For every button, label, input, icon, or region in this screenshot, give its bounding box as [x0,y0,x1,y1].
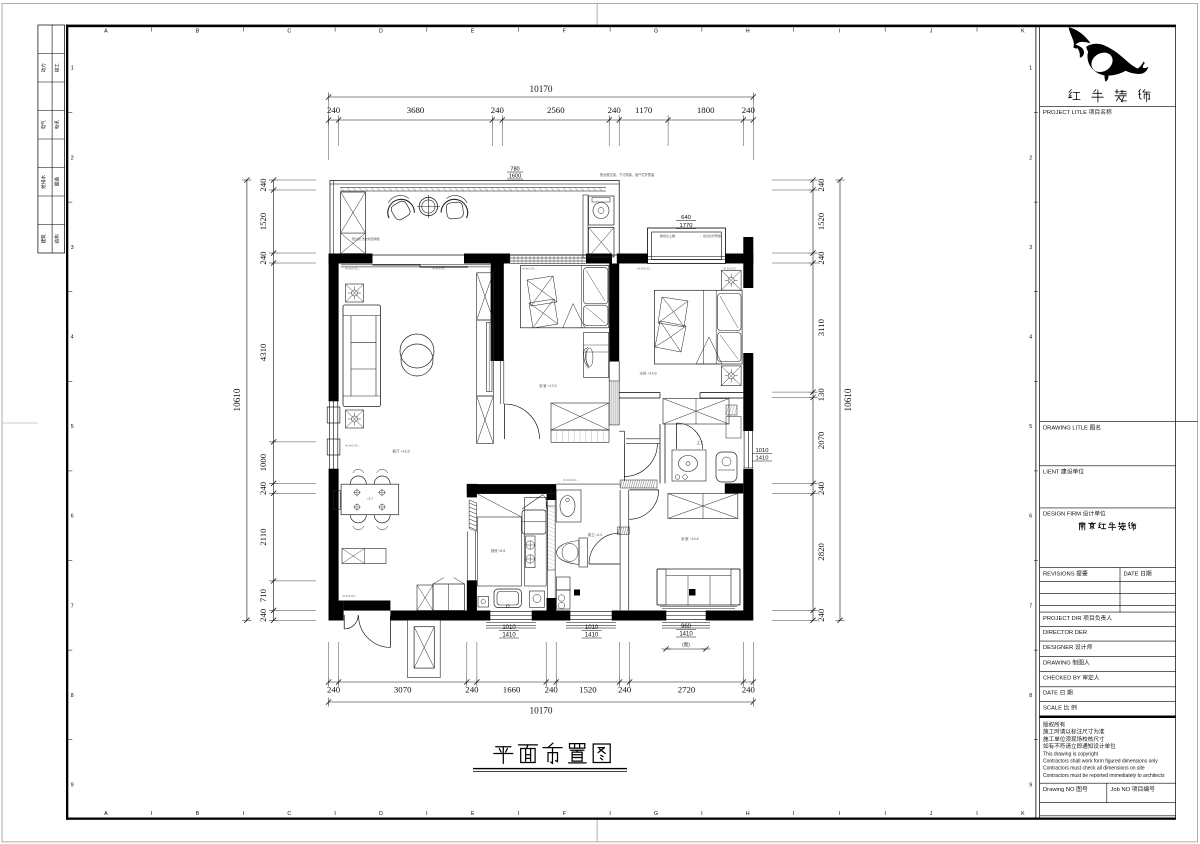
svg-text:J: J [930,811,933,817]
svg-text:H: H [746,811,750,817]
svg-text:5: 5 [71,424,74,430]
svg-text:710: 710 [258,588,268,602]
svg-text:240: 240 [608,105,622,115]
svg-text:8: 8 [1029,693,1032,699]
svg-text:飘窗台上翻: 飘窗台上翻 [660,233,675,238]
svg-text:10170: 10170 [530,84,553,94]
svg-text:卧室 ≈10.6: 卧室 ≈10.6 [681,536,698,541]
svg-text:240: 240 [258,608,268,622]
svg-text:≈2.7: ≈2.7 [367,497,373,501]
svg-text:电讯: 电讯 [53,120,60,130]
svg-text:G: G [654,29,658,35]
svg-text:2: 2 [71,155,74,161]
svg-text:DIRECTOR DER: DIRECTOR DER [1043,630,1087,636]
svg-text:4: 4 [71,335,74,341]
svg-text:A: A [104,811,108,817]
svg-text:REVISIONS 提要: REVISIONS 提要 [1043,569,1088,577]
svg-text:240: 240 [545,685,559,695]
svg-text:1000: 1000 [258,453,268,471]
svg-text:1770: 1770 [680,223,693,229]
svg-text:H: H [746,29,750,35]
svg-text:1660: 1660 [503,685,521,695]
svg-text:3: 3 [71,245,74,251]
svg-text:1: 1 [71,66,74,72]
svg-text:厨房 ≈5.8: 厨房 ≈5.8 [491,548,505,553]
svg-text:主卧 ≈14.6: 主卧 ≈14.6 [639,371,656,376]
svg-text:SCALE 比 例: SCALE 比 例 [1043,703,1077,711]
svg-text:LIENT 建设单位: LIENT 建设单位 [1043,467,1084,475]
svg-text:2: 2 [1029,155,1032,161]
svg-text:2110: 2110 [258,528,268,546]
svg-text:4310: 4310 [258,343,268,361]
svg-text:1410: 1410 [585,633,599,639]
svg-text:240: 240 [816,481,826,495]
svg-text:240: 240 [816,178,826,192]
svg-text:≈0.9×2.0C→: ≈0.9×2.0C→ [345,444,361,448]
svg-text:G: G [654,811,658,817]
svg-text:版权所有: 版权所有 [1043,721,1066,729]
svg-text:≈0.9×2.0C→: ≈0.9×2.0C→ [637,267,653,271]
svg-text:9: 9 [71,783,74,789]
svg-text:(窗): (窗) [682,641,690,648]
svg-text:F: F [563,29,566,35]
svg-text:竣工: 竣工 [53,63,60,73]
svg-text:Contractors shall work form fi: Contractors shall work form figured dime… [1043,759,1158,765]
svg-text:240: 240 [258,178,268,192]
svg-text:如有不符请立即通知设计单位: 如有不符请立即通知设计单位 [1043,742,1116,750]
svg-text:10610: 10610 [232,388,242,411]
svg-text:5: 5 [1029,424,1032,430]
svg-text:2820: 2820 [816,543,826,561]
svg-text:C: C [287,811,291,817]
svg-text:240: 240 [258,251,268,265]
svg-text:1410: 1410 [756,456,769,462]
svg-text:780: 780 [510,167,519,173]
svg-text:阳台柜 洗衣机置物柜: 阳台柜 洗衣机置物柜 [352,236,380,241]
svg-text:客卫 ≈4.0: 客卫 ≈4.0 [588,532,602,537]
svg-text:1170: 1170 [635,105,653,115]
svg-text:客厅 ≈16.5: 客厅 ≈16.5 [392,449,409,454]
svg-text:130: 130 [816,388,826,402]
svg-text:1800: 1800 [697,105,715,115]
svg-text:This drawing is copyright: This drawing is copyright [1043,751,1099,757]
svg-text:D: D [379,811,383,817]
svg-text:1: 1 [1029,66,1032,72]
svg-text:Contractors must be reported i: Contractors must be reported immediately… [1043,773,1165,779]
svg-text:2070: 2070 [816,431,826,449]
svg-text:≈0.9×2.0C→: ≈0.9×2.0C→ [563,478,579,482]
svg-text:240: 240 [618,685,632,695]
svg-text:CHECKED BY 审定人: CHECKED BY 审定人 [1043,673,1100,681]
svg-text:DRAWING 制图人: DRAWING 制图人 [1043,658,1090,666]
svg-text:640: 640 [681,215,691,221]
svg-text:暖通: 暖通 [53,177,60,187]
svg-text:E: E [471,29,475,35]
svg-text:240: 240 [816,608,826,622]
svg-text:DATE 日期: DATE 日期 [1124,570,1152,577]
svg-text:240: 240 [742,685,756,695]
svg-text:动力: 动力 [40,63,47,73]
svg-text:DESIGN FIRM 设计单位: DESIGN FIRM 设计单位 [1043,509,1106,517]
svg-text:建筑: 建筑 [40,234,47,244]
svg-text:I: I [839,29,840,35]
svg-text:9: 9 [1029,783,1032,789]
svg-text:DRAWING LITLE 图名: DRAWING LITLE 图名 [1043,423,1101,431]
svg-text:3: 3 [1029,245,1032,251]
svg-text:主卫: 主卫 [697,440,704,445]
svg-text:240: 240 [816,251,826,265]
svg-text:1410: 1410 [502,633,516,639]
svg-text:7: 7 [71,603,74,609]
svg-text:施工时请以标注尺寸为准: 施工时请以标注尺寸为准 [1043,728,1105,736]
svg-text:240: 240 [327,105,341,115]
svg-text:≈0.9×2.0C→: ≈0.9×2.0C→ [345,267,361,271]
svg-text:10170: 10170 [530,706,553,716]
svg-text:B: B [196,29,200,35]
svg-text:1600: 1600 [509,174,521,180]
svg-text:DESIGNER 设计师: DESIGNER 设计师 [1043,643,1092,651]
svg-text:10610: 10610 [843,388,853,411]
svg-text:I: I [839,811,840,817]
svg-text:240: 240 [327,685,341,695]
svg-text:2720: 2720 [678,685,696,695]
svg-text:240: 240 [258,481,268,495]
svg-text:≈0.9×2.0C→: ≈0.9×2.0C→ [723,267,739,271]
svg-text:J: J [930,29,933,35]
svg-text:3680: 3680 [407,105,425,115]
svg-text:960: 960 [681,624,692,630]
svg-text:1010: 1010 [585,625,599,631]
svg-text:Contractors must check all dim: Contractors must check all dimensions on… [1043,766,1145,772]
svg-text:1010: 1010 [502,625,516,631]
svg-text:E: E [471,811,475,817]
svg-text:1410: 1410 [679,632,693,638]
svg-text:B: B [196,811,200,817]
svg-text:240: 240 [491,105,505,115]
svg-text:施工单位须现场校核尺寸: 施工单位须现场校核尺寸 [1043,735,1105,743]
svg-text:PROJECT DIR 项目负责人: PROJECT DIR 项目负责人 [1043,614,1112,622]
svg-text:1520: 1520 [816,212,826,230]
svg-text:C: C [287,29,291,35]
svg-text:D: D [379,29,383,35]
svg-text:1520: 1520 [258,212,268,230]
svg-text:K: K [1021,29,1025,35]
svg-text:电气: 电气 [40,120,46,130]
svg-text:阳台推拉窗，下订购窗，窗户栏杆预留: 阳台推拉窗，下订购窗，窗户栏杆预留 [600,172,654,177]
svg-text:240: 240 [465,685,479,695]
svg-text:3070: 3070 [394,685,412,695]
svg-text:7: 7 [1029,603,1032,609]
svg-text:PROJECT LITLE 项目名称: PROJECT LITLE 项目名称 [1043,108,1112,116]
svg-text:6: 6 [71,514,74,520]
svg-text:卧室 ≈13.5: 卧室 ≈13.5 [539,383,556,388]
svg-text:给排水: 给排水 [40,175,47,189]
svg-text:≈0.9×2.0C→: ≈0.9×2.0C→ [522,267,538,271]
svg-text:1520: 1520 [579,685,597,695]
svg-text:4: 4 [1029,335,1032,341]
svg-text:3110: 3110 [816,318,826,336]
svg-text:A: A [104,29,108,35]
svg-text:K: K [1021,811,1025,817]
svg-text:6: 6 [1029,514,1032,520]
svg-text:F: F [563,811,566,817]
svg-text:Job NO 项目编号: Job NO 项目编号 [1111,785,1156,793]
svg-text:结构: 结构 [53,234,60,244]
svg-text:≈0.9×2.0C→: ≈0.9×2.0C→ [342,594,358,598]
svg-text:2560: 2560 [547,105,565,115]
svg-text:DATE 日 期: DATE 日 期 [1043,690,1073,697]
svg-text:1010: 1010 [756,448,769,454]
svg-text:←窗台栏杆预留: ←窗台栏杆预留 [700,233,721,238]
svg-text:Drawing NO 图号: Drawing NO 图号 [1043,785,1088,793]
svg-text:≈0.9×2.0C→: ≈0.9×2.0C→ [432,267,448,271]
svg-text:8: 8 [71,693,74,699]
